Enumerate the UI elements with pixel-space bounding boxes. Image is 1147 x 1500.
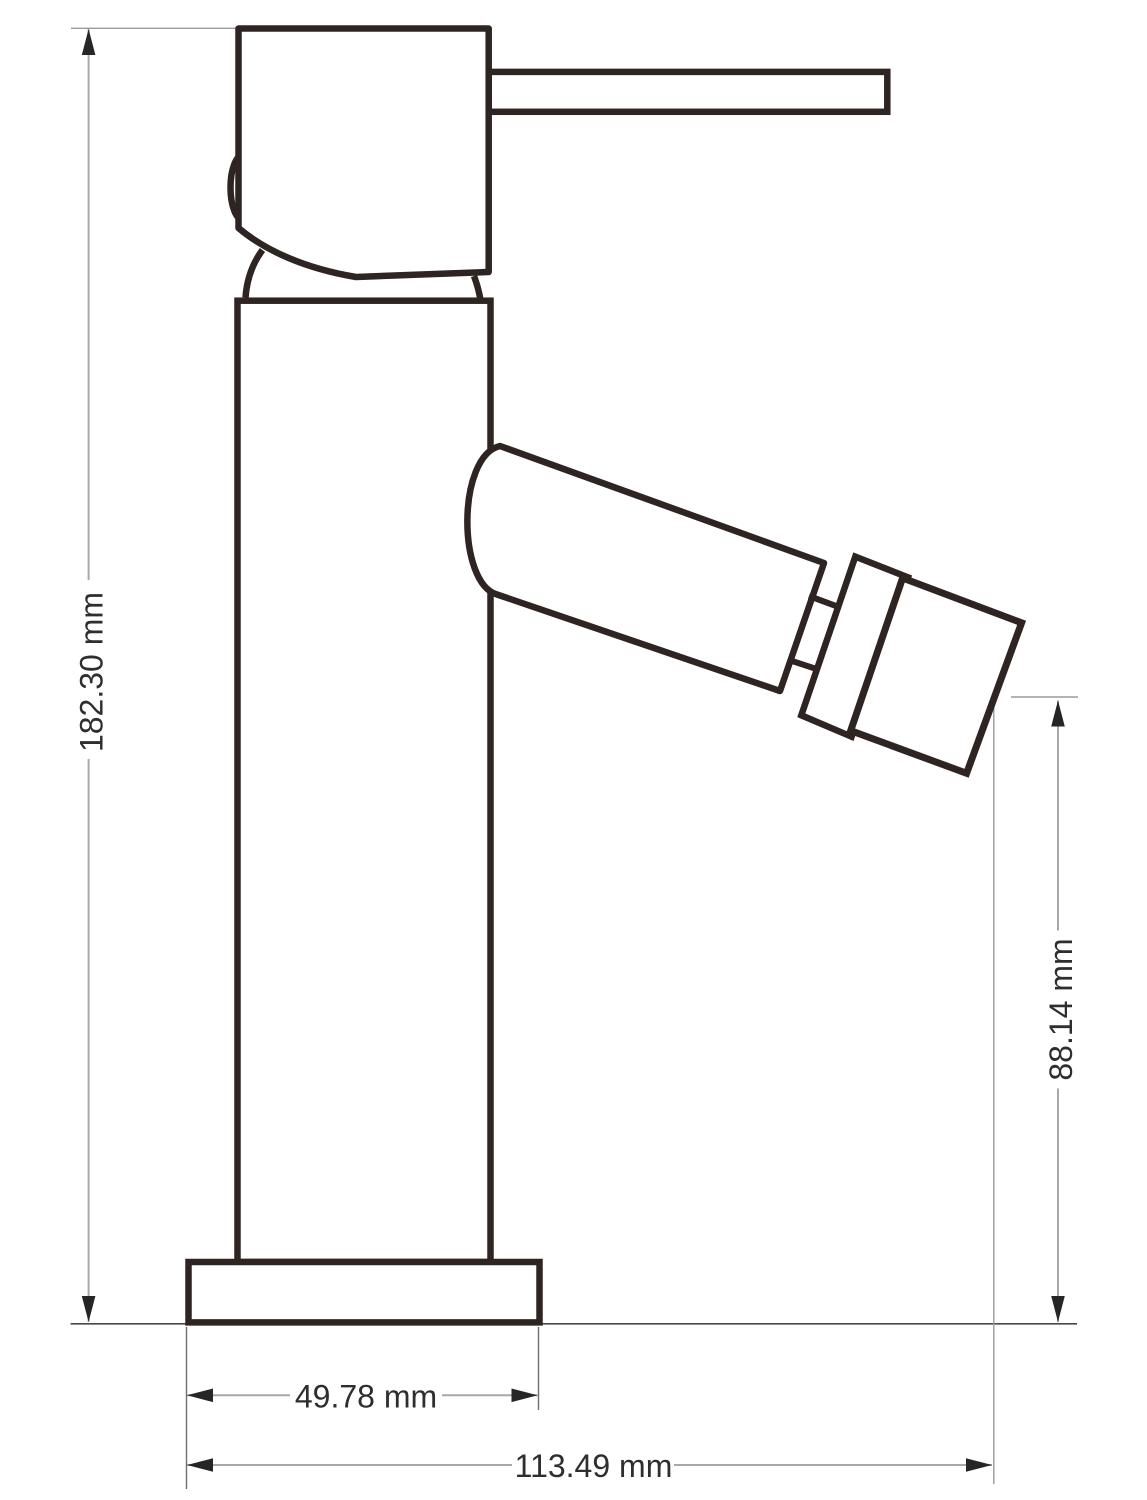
svg-text:88.14 mm: 88.14 mm bbox=[1043, 938, 1079, 1080]
svg-text:182.30 mm: 182.30 mm bbox=[74, 592, 110, 752]
svg-text:49.78 mm: 49.78 mm bbox=[295, 1378, 437, 1414]
svg-text:113.49 mm: 113.49 mm bbox=[515, 1448, 673, 1484]
